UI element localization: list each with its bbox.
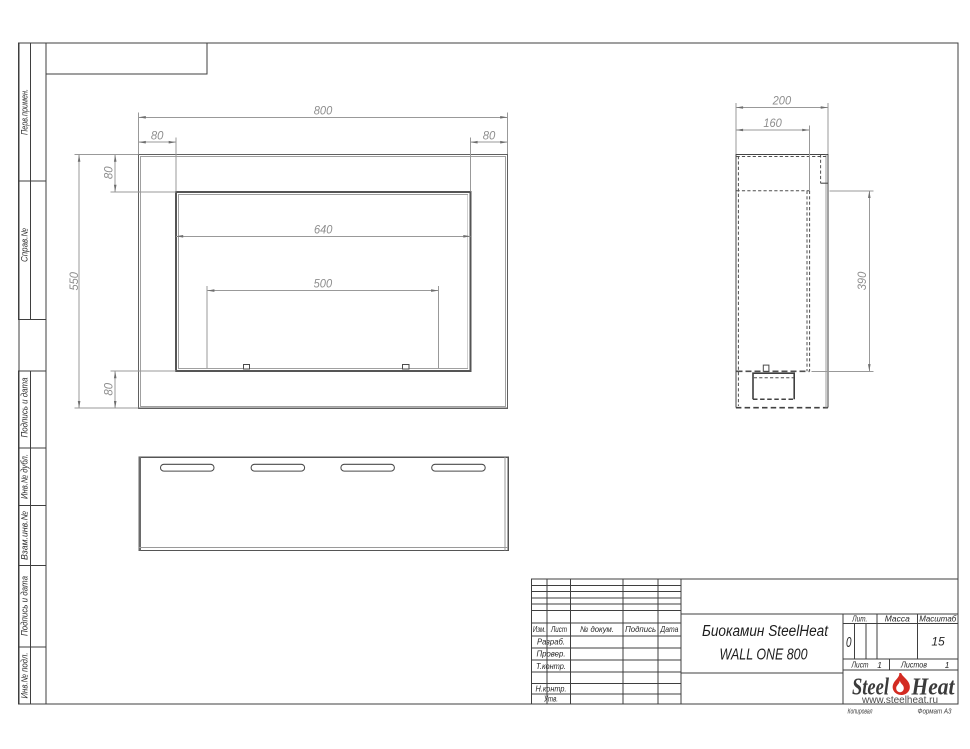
- svg-text:Перв.примен.: Перв.примен.: [20, 89, 30, 135]
- svg-text:Подпись и дата: Подпись и дата: [20, 378, 30, 438]
- svg-text:1: 1: [945, 660, 950, 670]
- svg-text:Т.контр.: Т.контр.: [536, 661, 566, 671]
- svg-text:Подпись: Подпись: [625, 624, 656, 634]
- svg-text:Инв.№ подл.: Инв.№ подл.: [20, 653, 30, 699]
- svg-text:Масса: Масса: [885, 613, 910, 623]
- svg-text:Лит.: Лит.: [852, 613, 868, 623]
- svg-text:200: 200: [772, 94, 792, 108]
- svg-text:80: 80: [483, 128, 496, 142]
- svg-text:80: 80: [101, 383, 115, 396]
- svg-text:WALL ONE 800: WALL ONE 800: [720, 647, 808, 664]
- svg-text:640: 640: [314, 222, 333, 236]
- svg-text:Инв.№ дубл.: Инв.№ дубл.: [20, 454, 30, 499]
- svg-text:Биокамин SteelHeat: Биокамин SteelHeat: [702, 623, 829, 640]
- svg-text:Изм.: Изм.: [533, 624, 546, 634]
- svg-text:15: 15: [931, 635, 945, 649]
- svg-text:160: 160: [763, 116, 782, 130]
- svg-text:550: 550: [67, 272, 81, 291]
- svg-text:80: 80: [101, 166, 115, 179]
- svg-text:Разраб.: Разраб.: [537, 637, 565, 647]
- svg-text:Взам.инв.№: Взам.инв.№: [20, 511, 30, 560]
- svg-text:Листов: Листов: [900, 660, 927, 670]
- svg-text:№ докум.: № докум.: [580, 624, 614, 634]
- svg-text:500: 500: [314, 277, 333, 291]
- svg-text:390: 390: [855, 271, 869, 290]
- svg-text:Копировал: Копировал: [848, 707, 874, 716]
- svg-text:Масштаб: Масштаб: [919, 614, 956, 624]
- svg-text:0: 0: [846, 635, 852, 651]
- svg-text:Лист: Лист: [550, 624, 567, 634]
- svg-text:Н.контр.: Н.контр.: [536, 683, 567, 693]
- svg-text:80: 80: [151, 128, 164, 142]
- svg-text:Лист: Лист: [851, 660, 869, 670]
- svg-text:www.steelheat.ru: www.steelheat.ru: [861, 695, 938, 706]
- svg-text:Утв.: Утв.: [543, 694, 558, 704]
- svg-text:800: 800: [314, 104, 333, 118]
- svg-text:1: 1: [877, 660, 882, 670]
- svg-text:Справ.№: Справ.№: [20, 228, 30, 262]
- svg-text:Подпись и дата: Подпись и дата: [20, 576, 30, 636]
- svg-text:Формат А3: Формат А3: [918, 707, 953, 716]
- svg-text:Провер.: Провер.: [537, 649, 566, 659]
- svg-text:Дата: Дата: [660, 624, 679, 634]
